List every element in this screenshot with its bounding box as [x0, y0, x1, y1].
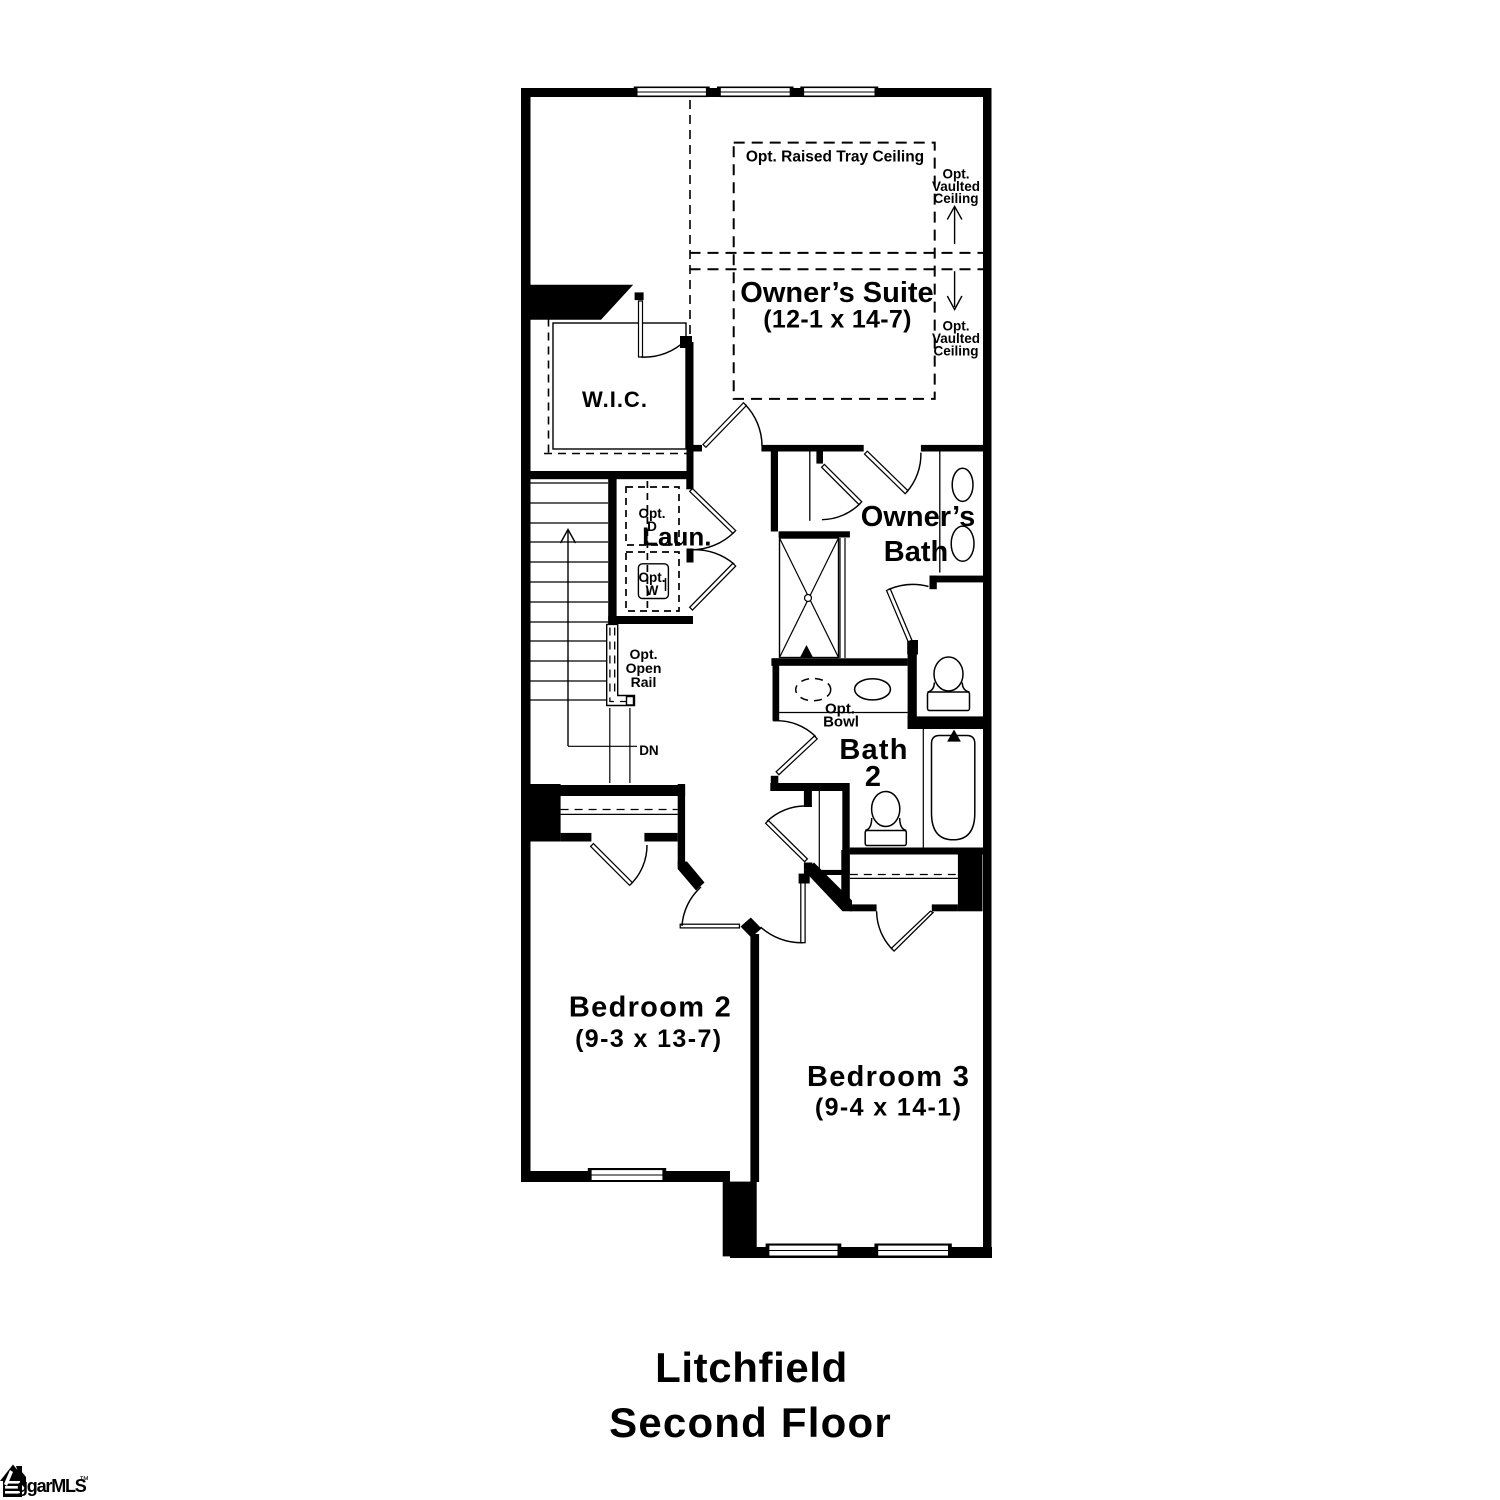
svg-text:Bath: Bath — [884, 536, 948, 568]
svg-text:D: D — [647, 519, 657, 534]
svg-text:Owner’s Suite: Owner’s Suite — [740, 277, 933, 309]
svg-text:Bedroom 3: Bedroom 3 — [807, 1061, 970, 1093]
svg-text:(9-3 x 13-7): (9-3 x 13-7) — [575, 1025, 722, 1053]
svg-text:Second Floor: Second Floor — [609, 1399, 892, 1446]
svg-text:Bedroom 2: Bedroom 2 — [569, 992, 732, 1024]
svg-text:2: 2 — [865, 761, 881, 793]
svg-text:Opt. Raised Tray Ceiling: Opt. Raised Tray Ceiling — [746, 148, 924, 165]
svg-text:Rail: Rail — [631, 674, 657, 690]
svg-text:(9-4 x 14-1): (9-4 x 14-1) — [815, 1094, 962, 1122]
svg-text:ggarMLS: ggarMLS — [17, 1476, 87, 1496]
svg-text:Ceiling: Ceiling — [933, 191, 978, 206]
svg-text:(12-1 x 14-7): (12-1 x 14-7) — [763, 306, 911, 334]
svg-text:W: W — [646, 583, 659, 598]
svg-text:Ceiling: Ceiling — [933, 344, 978, 359]
svg-text:W.I.C.: W.I.C. — [582, 387, 648, 412]
svg-text:Litchfield: Litchfield — [655, 1344, 848, 1391]
svg-text:DN: DN — [639, 743, 659, 758]
svg-text:™: ™ — [79, 1475, 89, 1486]
svg-text:Owner’s: Owner’s — [861, 501, 975, 533]
svg-text:Bowl: Bowl — [823, 713, 859, 730]
